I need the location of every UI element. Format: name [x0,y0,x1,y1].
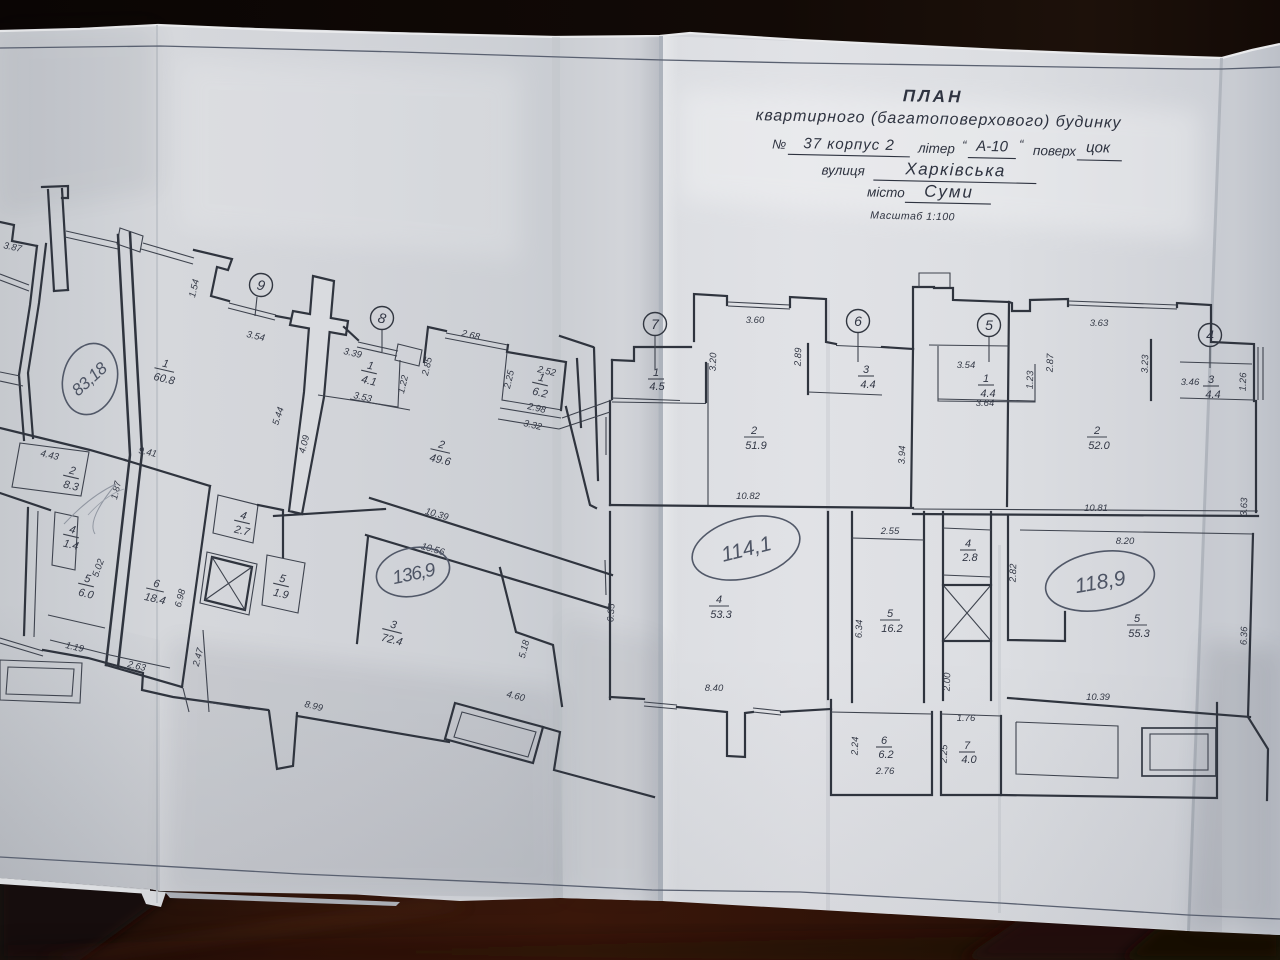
svg-text:3: 3 [1208,374,1215,386]
svg-text:5: 5 [985,317,993,333]
svg-text:7: 7 [964,740,971,752]
svg-text:6: 6 [854,313,862,329]
svg-text:2.55: 2.55 [880,526,900,537]
svg-text:2: 2 [750,425,757,437]
svg-text:4.5: 4.5 [649,381,665,393]
svg-text:6.34: 6.34 [854,619,866,638]
svg-text:3.20: 3.20 [708,352,720,372]
svg-text:10.39: 10.39 [1086,692,1110,703]
svg-text:4.4: 4.4 [1205,389,1220,401]
svg-text:53.3: 53.3 [710,609,732,621]
svg-text:ПЛАН: ПЛАН [903,86,964,106]
svg-text:поверх: поверх [1033,143,1078,159]
svg-text:1.76: 1.76 [957,713,976,724]
svg-text:3.60: 3.60 [746,315,765,326]
svg-text:цок: цок [1086,139,1111,157]
svg-text:1.23: 1.23 [1025,370,1037,390]
svg-text:4.0: 4.0 [961,754,977,766]
svg-text:8.40: 8.40 [705,683,724,694]
svg-text:7: 7 [651,316,660,332]
svg-text:2.87: 2.87 [1045,353,1057,374]
svg-text:16.2: 16.2 [881,623,902,635]
svg-text:2.76: 2.76 [875,766,895,777]
svg-text:10.81: 10.81 [1084,503,1108,514]
svg-text:52.0: 52.0 [1088,440,1110,452]
svg-text:Харківська: Харківська [904,159,1006,180]
svg-text:4.4: 4.4 [980,388,995,400]
svg-text:2.82: 2.82 [1008,563,1020,584]
svg-text:10.82: 10.82 [736,491,760,502]
svg-text:3.54: 3.54 [957,360,976,371]
svg-text:2.24: 2.24 [850,736,862,756]
svg-text:3.63: 3.63 [1090,318,1109,329]
svg-text:А-10: А-10 [975,138,1009,156]
svg-text:Суми: Суми [924,182,974,202]
svg-text:5: 5 [887,608,894,620]
svg-text:2.8: 2.8 [961,552,978,564]
svg-text:літер: літер [917,141,956,157]
svg-text:6: 6 [881,735,888,747]
svg-text:1: 1 [653,367,659,379]
svg-text:4.4: 4.4 [860,379,875,391]
svg-text:3.63: 3.63 [1239,497,1251,517]
svg-text:3: 3 [863,364,870,376]
svg-text:2.00: 2.00 [942,672,954,693]
svg-text:3.23: 3.23 [1140,354,1152,374]
svg-text:55.3: 55.3 [1128,628,1150,640]
svg-text:51.9: 51.9 [745,440,766,452]
svg-text:вулиця: вулиця [821,163,865,179]
svg-text:8.20: 8.20 [1116,536,1135,547]
svg-text:6.36: 6.36 [1239,626,1251,646]
svg-text:2.89: 2.89 [793,347,805,368]
svg-text:4: 4 [716,594,722,606]
svg-text:6.35: 6.35 [605,603,617,623]
svg-text:місто: місто [867,184,905,200]
svg-text:2.25: 2.25 [939,744,951,765]
svg-text:3.46: 3.46 [1181,377,1200,388]
svg-text:6.2: 6.2 [878,749,893,761]
svg-text:37 корпус 2: 37 корпус 2 [803,135,895,154]
svg-text:3.94: 3.94 [897,445,909,464]
svg-text:1.26: 1.26 [1238,372,1250,392]
svg-text:2: 2 [1093,425,1100,437]
svg-text:1: 1 [983,373,989,385]
svg-text:Масштаб 1:100: Масштаб 1:100 [870,210,955,224]
svg-text:5: 5 [1134,613,1141,625]
svg-text:4: 4 [965,538,971,550]
svg-text:№: № [772,136,786,151]
svg-text:4: 4 [1206,327,1214,343]
